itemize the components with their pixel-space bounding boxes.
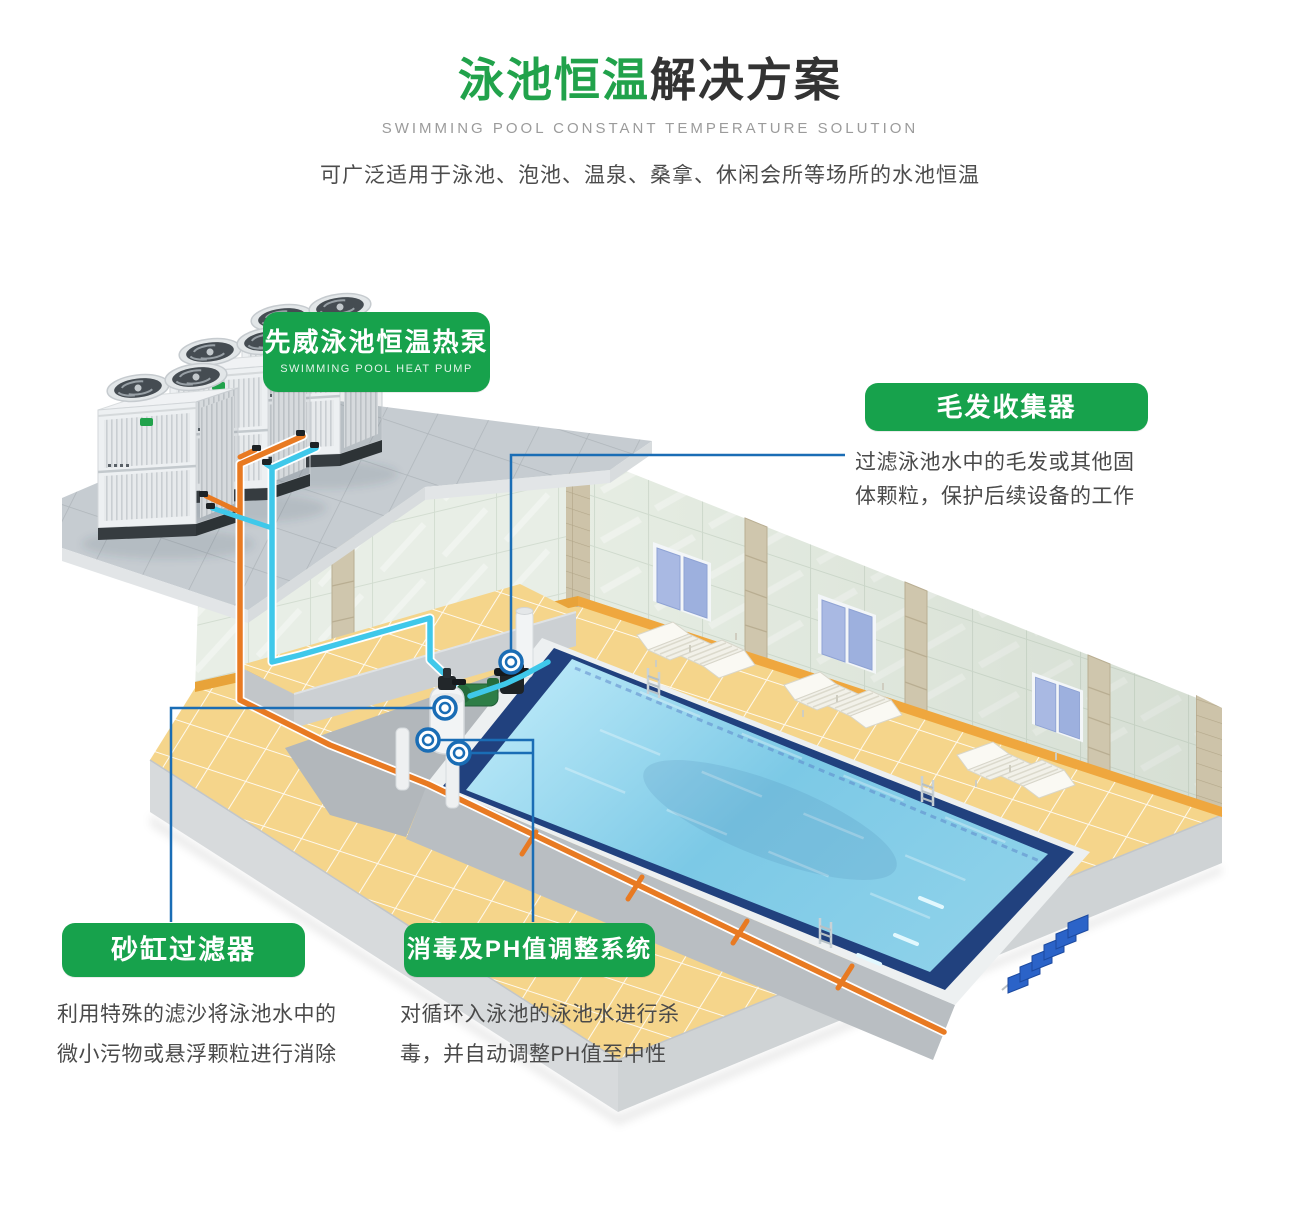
subtitle-en: SWIMMING POOL CONSTANT TEMPERATURE SOLUT… (0, 120, 1300, 137)
hair-desc-line2: 体颗粒，保护后续设备的工作 (855, 480, 1135, 514)
label-hair-collector-title: 毛发收集器 (936, 394, 1076, 420)
label-ph-system: 消毒及PH值调整系统 (404, 923, 655, 977)
label-sand-filter-title: 砂缸过滤器 (111, 937, 256, 964)
label-heat-pump-title: 先威泳池恒温热泵 (264, 329, 488, 355)
ph-desc-line2: 毒，并自动调整PH值至中性 (400, 1035, 680, 1075)
sand-filter-description: 利用特殊的滤沙将泳池水中的 微小污物或悬浮颗粒进行消除 (57, 995, 337, 1075)
sand-desc-line2: 微小污物或悬浮颗粒进行消除 (57, 1035, 337, 1075)
poster: 泳池恒温解决方案 SWIMMING POOL CONSTANT TEMPERAT… (0, 0, 1300, 1207)
description: 可广泛适用于泳池、泡池、温泉、桑拿、休闲会所等场所的水池恒温 (0, 159, 1300, 189)
title-highlight: 泳池恒温 (458, 54, 650, 106)
page-title: 泳池恒温解决方案 (0, 55, 1300, 106)
ph-system-description: 对循环入泳池的泳池水进行杀 毒，并自动调整PH值至中性 (400, 995, 680, 1075)
hair-collector-description: 过滤泳池水中的毛发或其他固 体颗粒，保护后续设备的工作 (855, 446, 1135, 514)
label-ph-system-title: 消毒及PH值调整系统 (407, 938, 652, 962)
label-hair-collector: 毛发收集器 (865, 383, 1148, 431)
header: 泳池恒温解决方案 SWIMMING POOL CONSTANT TEMPERAT… (0, 0, 1300, 189)
sand-desc-line1: 利用特殊的滤沙将泳池水中的 (57, 995, 337, 1035)
ph-desc-line1: 对循环入泳池的泳池水进行杀 (400, 995, 680, 1035)
label-heat-pump-subtitle: SWIMMING POOL HEAT PUMP (280, 363, 473, 375)
label-sand-filter: 砂缸过滤器 (62, 923, 305, 977)
title-rest: 解决方案 (650, 54, 842, 106)
hair-desc-line1: 过滤泳池水中的毛发或其他固 (855, 446, 1135, 480)
label-heat-pump: 先威泳池恒温热泵 SWIMMING POOL HEAT PUMP (263, 312, 490, 392)
